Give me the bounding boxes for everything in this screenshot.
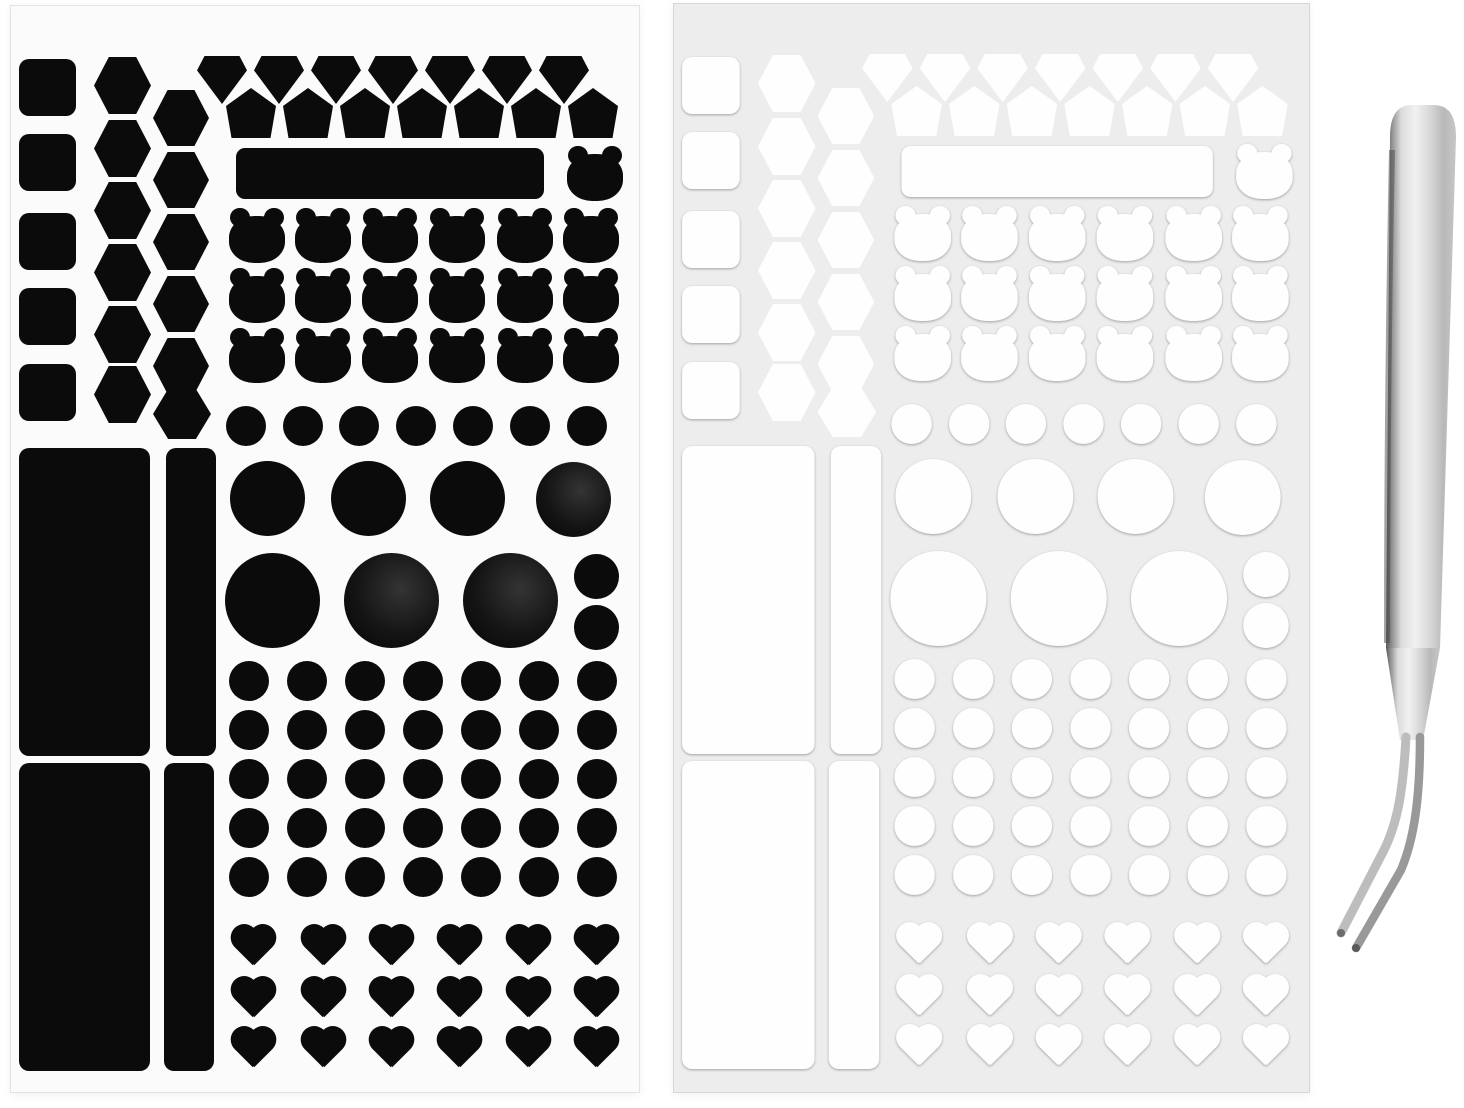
heart-sticker [433, 925, 485, 972]
dot-sticker [577, 710, 617, 750]
dot-sticker [1178, 404, 1218, 444]
square-sticker [682, 362, 740, 419]
dot-sticker [574, 554, 619, 599]
dot-sticker [895, 459, 971, 534]
bear-sticker [497, 328, 553, 383]
dot-sticker [894, 855, 934, 895]
dot-sticker [345, 759, 385, 799]
dot-sticker [461, 759, 501, 799]
rectangle-sticker [166, 448, 216, 756]
dot-sticker [430, 461, 505, 536]
dot-sticker [463, 553, 558, 648]
hexagon-sticker [153, 214, 209, 270]
bear-sticker [295, 268, 351, 323]
dot-sticker [453, 406, 493, 446]
dot-sticker [577, 857, 617, 897]
square-sticker [19, 288, 76, 345]
hexagon-sticker [818, 387, 877, 437]
sticker-sheet-black [10, 5, 640, 1093]
pentagon-sticker [511, 88, 561, 138]
dot-sticker [953, 855, 993, 895]
dot-sticker [1246, 855, 1286, 895]
dot-sticker [1131, 551, 1227, 646]
dot-sticker [949, 404, 989, 444]
bear-sticker [229, 208, 285, 263]
hexagon-sticker [153, 338, 209, 394]
bear-sticker [1097, 266, 1154, 321]
bear-sticker [362, 268, 418, 323]
dot-sticker [344, 553, 439, 648]
rectangle-sticker [829, 761, 880, 1069]
dot-sticker [1188, 806, 1228, 846]
dot-sticker [894, 659, 934, 699]
bear-sticker [429, 328, 485, 383]
heart-sticker [1032, 923, 1085, 970]
heart-sticker [433, 1027, 485, 1074]
bear-sticker [295, 328, 351, 383]
heart-sticker [502, 1027, 554, 1074]
hexagon-sticker [94, 120, 151, 177]
heart-sticker [570, 977, 622, 1024]
dot-sticker [953, 757, 993, 797]
heart-sticker [892, 923, 945, 970]
dot-sticker [1070, 708, 1110, 748]
bear-sticker [1029, 206, 1086, 261]
bear-sticker [563, 208, 619, 263]
rectangle-sticker [19, 763, 150, 1071]
dot-sticker [229, 661, 269, 701]
hexagon-sticker [758, 242, 816, 299]
heart-sticker [502, 977, 554, 1024]
heart-sticker [963, 923, 1016, 970]
dot-sticker [229, 857, 269, 897]
hexagon-sticker [153, 389, 211, 439]
square-sticker [682, 286, 740, 343]
bear-sticker [1232, 206, 1289, 261]
tweezers-tip [1352, 944, 1360, 952]
hexagon-sticker [758, 180, 816, 237]
dot-sticker [567, 406, 607, 446]
dot-sticker [519, 808, 559, 848]
dot-sticker [894, 757, 934, 797]
square-sticker [682, 132, 740, 189]
dot-sticker [577, 808, 617, 848]
tweezers-prong [1341, 737, 1406, 933]
square-sticker [19, 364, 76, 421]
dot-sticker [287, 857, 327, 897]
heart-sticker [297, 977, 349, 1024]
dot-sticker [519, 661, 559, 701]
heart-sticker [1170, 923, 1223, 970]
dot-sticker [1129, 708, 1169, 748]
heart-sticker [892, 975, 945, 1022]
heart-sticker [1170, 1025, 1223, 1072]
dot-sticker [230, 461, 305, 536]
tweezers-tip [1337, 929, 1345, 937]
heart-sticker [1170, 975, 1223, 1022]
pentagon-sticker [568, 88, 618, 138]
heart-sticker [892, 1025, 945, 1072]
dot-sticker [1188, 659, 1228, 699]
hexagon-sticker [94, 244, 151, 301]
dot-sticker [403, 661, 443, 701]
dot-sticker [1012, 855, 1052, 895]
bear-sticker [894, 206, 951, 261]
dot-sticker [461, 710, 501, 750]
pentagon-sticker [1180, 86, 1231, 136]
dot-sticker [998, 459, 1074, 534]
square-sticker [19, 134, 76, 191]
bear-sticker [295, 208, 351, 263]
dot-sticker [1006, 404, 1046, 444]
bear-sticker [961, 266, 1018, 321]
heart-sticker [433, 977, 485, 1024]
tweezers-handle [1386, 105, 1456, 648]
hexagon-sticker [758, 364, 816, 421]
heart-sticker [365, 1027, 417, 1074]
dot-sticker [1070, 855, 1110, 895]
bear-sticker [1029, 326, 1086, 381]
hexagon-sticker [153, 276, 209, 332]
dot-sticker [1129, 806, 1169, 846]
dot-sticker [1063, 404, 1103, 444]
hexagon-sticker [758, 118, 816, 175]
hexagon-sticker [818, 336, 875, 392]
label-bar-sticker [236, 148, 544, 199]
rectangle-sticker [682, 761, 814, 1069]
bear-sticker [497, 208, 553, 263]
heart-sticker [227, 1027, 279, 1074]
dot-sticker [461, 661, 501, 701]
dot-sticker [1011, 551, 1107, 646]
dot-sticker [577, 759, 617, 799]
bear-sticker [1029, 266, 1086, 321]
bear-sticker [229, 328, 285, 383]
pentagon-sticker [397, 88, 447, 138]
dot-sticker [403, 710, 443, 750]
product-photo [0, 0, 1464, 1108]
square-sticker [19, 59, 76, 116]
pentagon-sticker [283, 88, 333, 138]
bear-sticker [563, 268, 619, 323]
dot-sticker [1188, 708, 1228, 748]
dot-sticker [345, 857, 385, 897]
dot-sticker [1012, 757, 1052, 797]
hexagon-sticker [153, 90, 209, 146]
dot-sticker [536, 462, 611, 537]
label-bar-sticker [901, 146, 1212, 197]
hexagon-sticker [818, 150, 875, 206]
dot-sticker [229, 808, 269, 848]
bear-sticker [961, 326, 1018, 381]
heart-sticker [1239, 975, 1292, 1022]
dot-sticker [519, 857, 559, 897]
bear-sticker [429, 268, 485, 323]
bear-sticker [429, 208, 485, 263]
dot-sticker [510, 406, 550, 446]
heart-sticker [1239, 1025, 1292, 1072]
dot-sticker [1012, 659, 1052, 699]
heart-sticker [297, 1027, 349, 1074]
hexagon-sticker [818, 212, 875, 268]
pentagon-sticker [1064, 86, 1115, 136]
dot-sticker [1121, 404, 1161, 444]
dot-sticker [396, 406, 436, 446]
dot-sticker [953, 659, 993, 699]
dot-sticker [1246, 757, 1286, 797]
heart-sticker [227, 925, 279, 972]
heart-sticker [502, 925, 554, 972]
heart-sticker [1032, 1025, 1085, 1072]
bear-sticker [1165, 206, 1222, 261]
bear-sticker [1097, 326, 1154, 381]
dot-sticker [403, 808, 443, 848]
rectangle-sticker [19, 448, 150, 756]
bear-sticker [567, 146, 623, 201]
hexagon-sticker [94, 57, 151, 114]
hexagon-sticker [818, 88, 875, 144]
dot-sticker [1246, 708, 1286, 748]
bear-sticker [961, 206, 1018, 261]
dot-sticker [225, 553, 320, 648]
dot-sticker [287, 661, 327, 701]
dot-sticker [287, 710, 327, 750]
dot-sticker [229, 759, 269, 799]
dot-sticker [1236, 404, 1276, 444]
dot-sticker [1243, 603, 1288, 648]
dot-sticker [574, 605, 619, 650]
dot-sticker [1129, 855, 1169, 895]
pentagon-sticker [226, 88, 276, 138]
pentagon-sticker [1237, 86, 1288, 136]
square-sticker [19, 213, 76, 270]
dot-sticker [345, 710, 385, 750]
tweezers-neck [1386, 648, 1440, 740]
bear-sticker [894, 326, 951, 381]
hexagon-sticker [94, 366, 151, 423]
dot-sticker [1246, 659, 1286, 699]
bear-sticker [1165, 326, 1222, 381]
heart-sticker [1032, 975, 1085, 1022]
bear-sticker [362, 328, 418, 383]
bear-sticker [563, 328, 619, 383]
dot-sticker [403, 857, 443, 897]
dot-sticker [1188, 757, 1228, 797]
heart-sticker [365, 977, 417, 1024]
bear-sticker [1236, 144, 1293, 199]
bear-sticker [1165, 266, 1222, 321]
pentagon-sticker [340, 88, 390, 138]
dot-sticker [403, 759, 443, 799]
bear-sticker [894, 266, 951, 321]
dot-sticker [1243, 552, 1288, 597]
heart-sticker [1101, 923, 1154, 970]
dot-sticker [339, 406, 379, 446]
heart-sticker [297, 925, 349, 972]
hexagon-sticker [758, 55, 816, 112]
tweezers [1318, 95, 1464, 975]
square-sticker [682, 57, 740, 114]
dot-sticker [1098, 459, 1174, 534]
dot-sticker [229, 710, 269, 750]
dot-sticker [894, 806, 934, 846]
square-sticker [682, 211, 740, 268]
rectangle-sticker [831, 446, 882, 754]
dot-sticker [1188, 855, 1228, 895]
dot-sticker [891, 404, 931, 444]
rectangle-sticker [164, 763, 214, 1071]
dot-sticker [345, 661, 385, 701]
bear-sticker [229, 268, 285, 323]
heart-sticker [1239, 923, 1292, 970]
heart-sticker [570, 925, 622, 972]
dot-sticker [461, 808, 501, 848]
dot-sticker [953, 708, 993, 748]
dot-sticker [345, 808, 385, 848]
hexagon-sticker [818, 274, 875, 330]
dot-sticker [226, 406, 266, 446]
dot-sticker [953, 806, 993, 846]
heart-sticker [570, 1027, 622, 1074]
dot-sticker [1129, 757, 1169, 797]
bear-sticker [362, 208, 418, 263]
dot-sticker [331, 461, 406, 536]
dot-sticker [577, 661, 617, 701]
heart-sticker [963, 975, 1016, 1022]
hexagon-sticker [94, 182, 151, 239]
dot-sticker [1070, 757, 1110, 797]
hexagon-sticker [94, 306, 151, 363]
dot-sticker [890, 551, 986, 646]
dot-sticker [287, 808, 327, 848]
dot-sticker [1070, 806, 1110, 846]
hexagon-sticker [153, 152, 209, 208]
dot-sticker [461, 857, 501, 897]
dot-sticker [1129, 659, 1169, 699]
bear-sticker [1232, 326, 1289, 381]
rectangle-sticker [682, 446, 814, 754]
heart-sticker [1101, 1025, 1154, 1072]
dot-sticker [519, 710, 559, 750]
dot-sticker [1205, 460, 1281, 535]
heart-sticker [227, 977, 279, 1024]
dot-sticker [1070, 659, 1110, 699]
heart-sticker [1101, 975, 1154, 1022]
dot-sticker [894, 708, 934, 748]
heart-sticker [365, 925, 417, 972]
heart-sticker [963, 1025, 1016, 1072]
pentagon-sticker [1122, 86, 1173, 136]
bear-sticker [1232, 266, 1289, 321]
dot-sticker [1246, 806, 1286, 846]
hexagon-sticker [758, 304, 816, 361]
pentagon-sticker [949, 86, 1000, 136]
dot-sticker [283, 406, 323, 446]
dot-sticker [519, 759, 559, 799]
dot-sticker [287, 759, 327, 799]
dot-sticker [1012, 708, 1052, 748]
bear-sticker [497, 268, 553, 323]
dot-sticker [1012, 806, 1052, 846]
pentagon-sticker [1007, 86, 1058, 136]
bear-sticker [1097, 206, 1154, 261]
sticker-sheet-white [673, 3, 1310, 1093]
pentagon-sticker [891, 86, 942, 136]
pentagon-sticker [454, 88, 504, 138]
